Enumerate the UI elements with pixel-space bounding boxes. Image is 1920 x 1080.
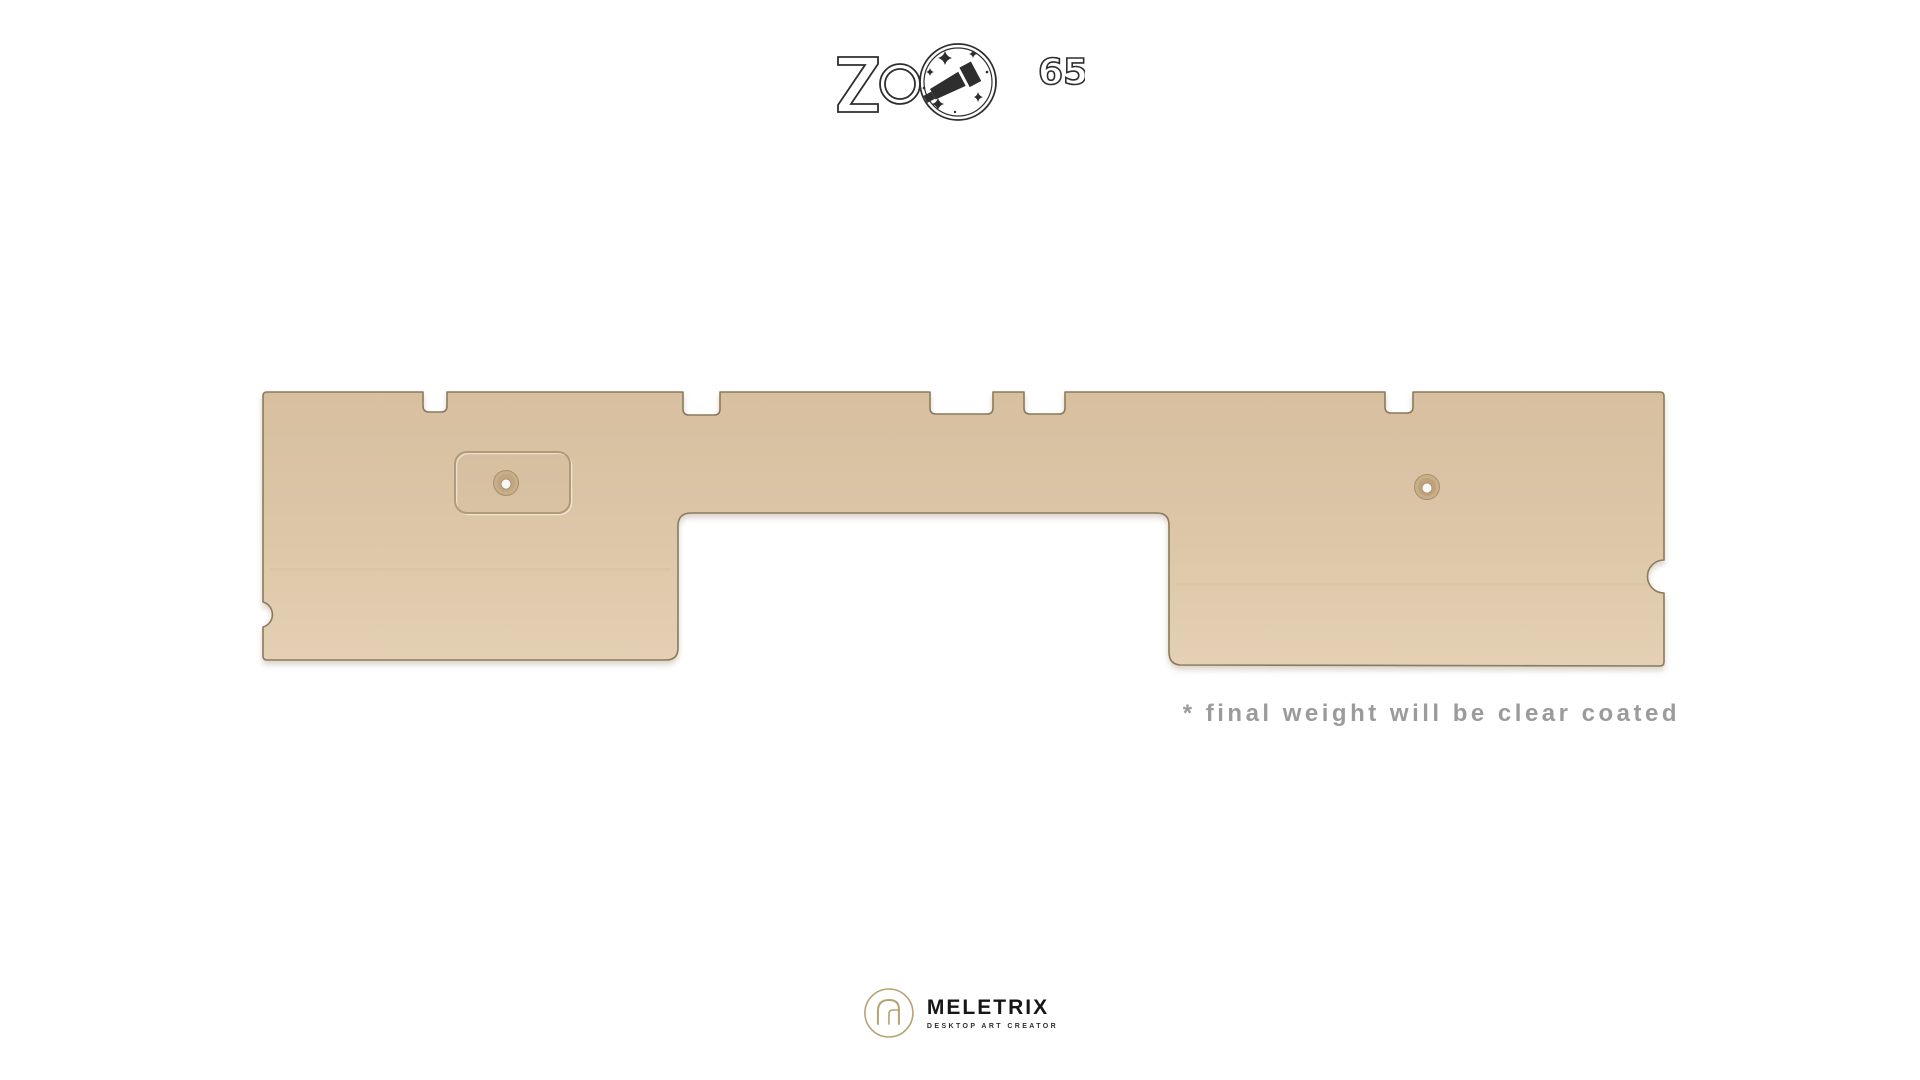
surface-band	[1175, 583, 1655, 586]
caption-note: * final weight will be clear coated	[1183, 700, 1680, 728]
star-dot-icon	[923, 87, 926, 90]
logo-letter-o	[880, 64, 920, 104]
meletrix-logo: MELETRIX DESKTOP ART CREATOR	[862, 986, 1058, 1040]
meletrix-emblem-icon	[862, 986, 916, 1040]
star-dot-icon	[954, 111, 956, 113]
weight-outline	[263, 392, 1664, 666]
meletrix-tagline: DESKTOP ART CREATOR	[927, 1023, 1058, 1030]
zoom65-logo: 65	[835, 28, 1085, 123]
surface-band	[270, 568, 670, 571]
right-screw-hole	[1415, 475, 1440, 500]
weight-render	[240, 378, 1700, 688]
logo-superscript-65: 65	[1038, 52, 1085, 93]
logo-letter-z	[838, 57, 878, 112]
meletrix-wordmark: MELETRIX	[927, 996, 1058, 1019]
plaque-screw-hole	[494, 471, 519, 496]
star-dot-icon	[986, 71, 989, 74]
